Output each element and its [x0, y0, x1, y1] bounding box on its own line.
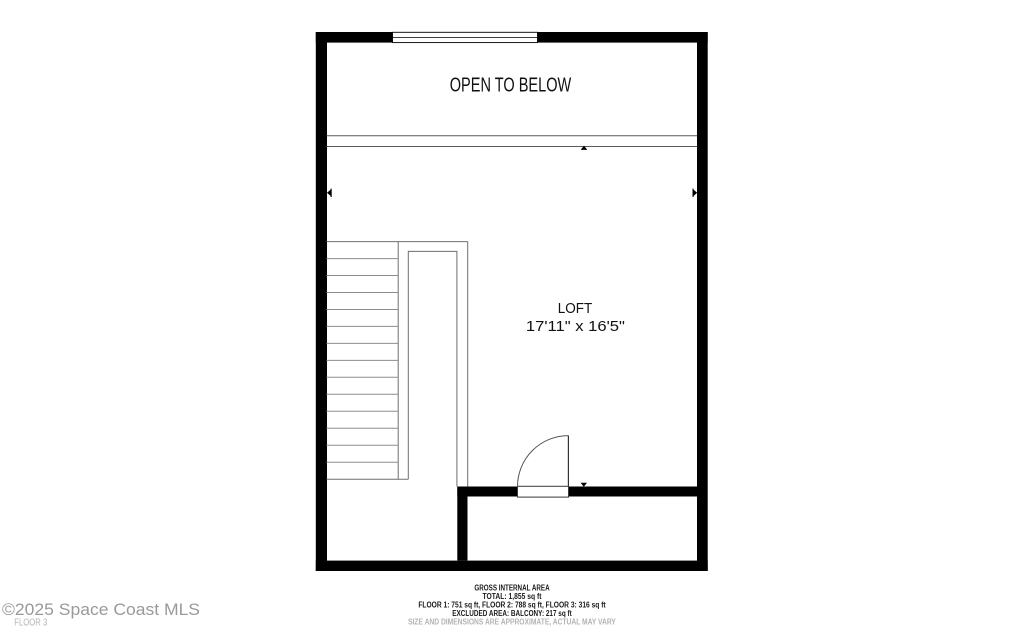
svg-text:OPEN TO BELOW: OPEN TO BELOW [450, 75, 572, 97]
svg-text:17'11" x 16'5": 17'11" x 16'5" [526, 318, 625, 335]
svg-text:LOFT: LOFT [558, 300, 593, 317]
svg-text:©2025 Space Coast MLS: ©2025 Space Coast MLS [2, 600, 200, 619]
svg-text:SIZE AND DIMENSIONS ARE APPROX: SIZE AND DIMENSIONS ARE APPROXIMATE, ACT… [408, 616, 616, 626]
svg-text:FLOOR 3: FLOOR 3 [14, 618, 47, 629]
